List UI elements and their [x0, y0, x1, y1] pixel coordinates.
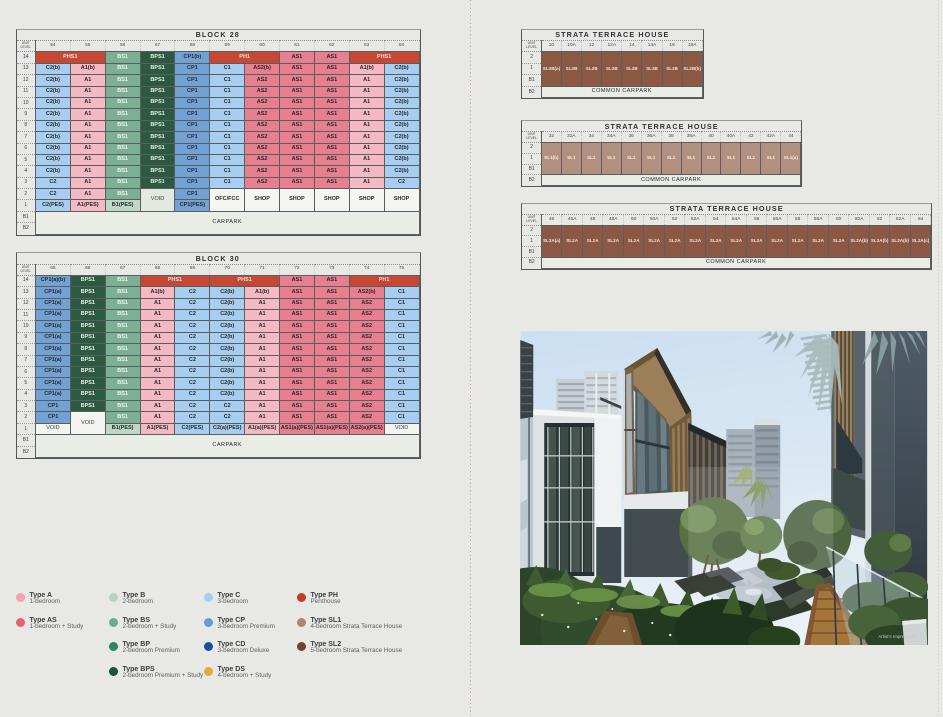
svg-text:Artist’s Impression: Artist’s Impression [878, 634, 915, 639]
